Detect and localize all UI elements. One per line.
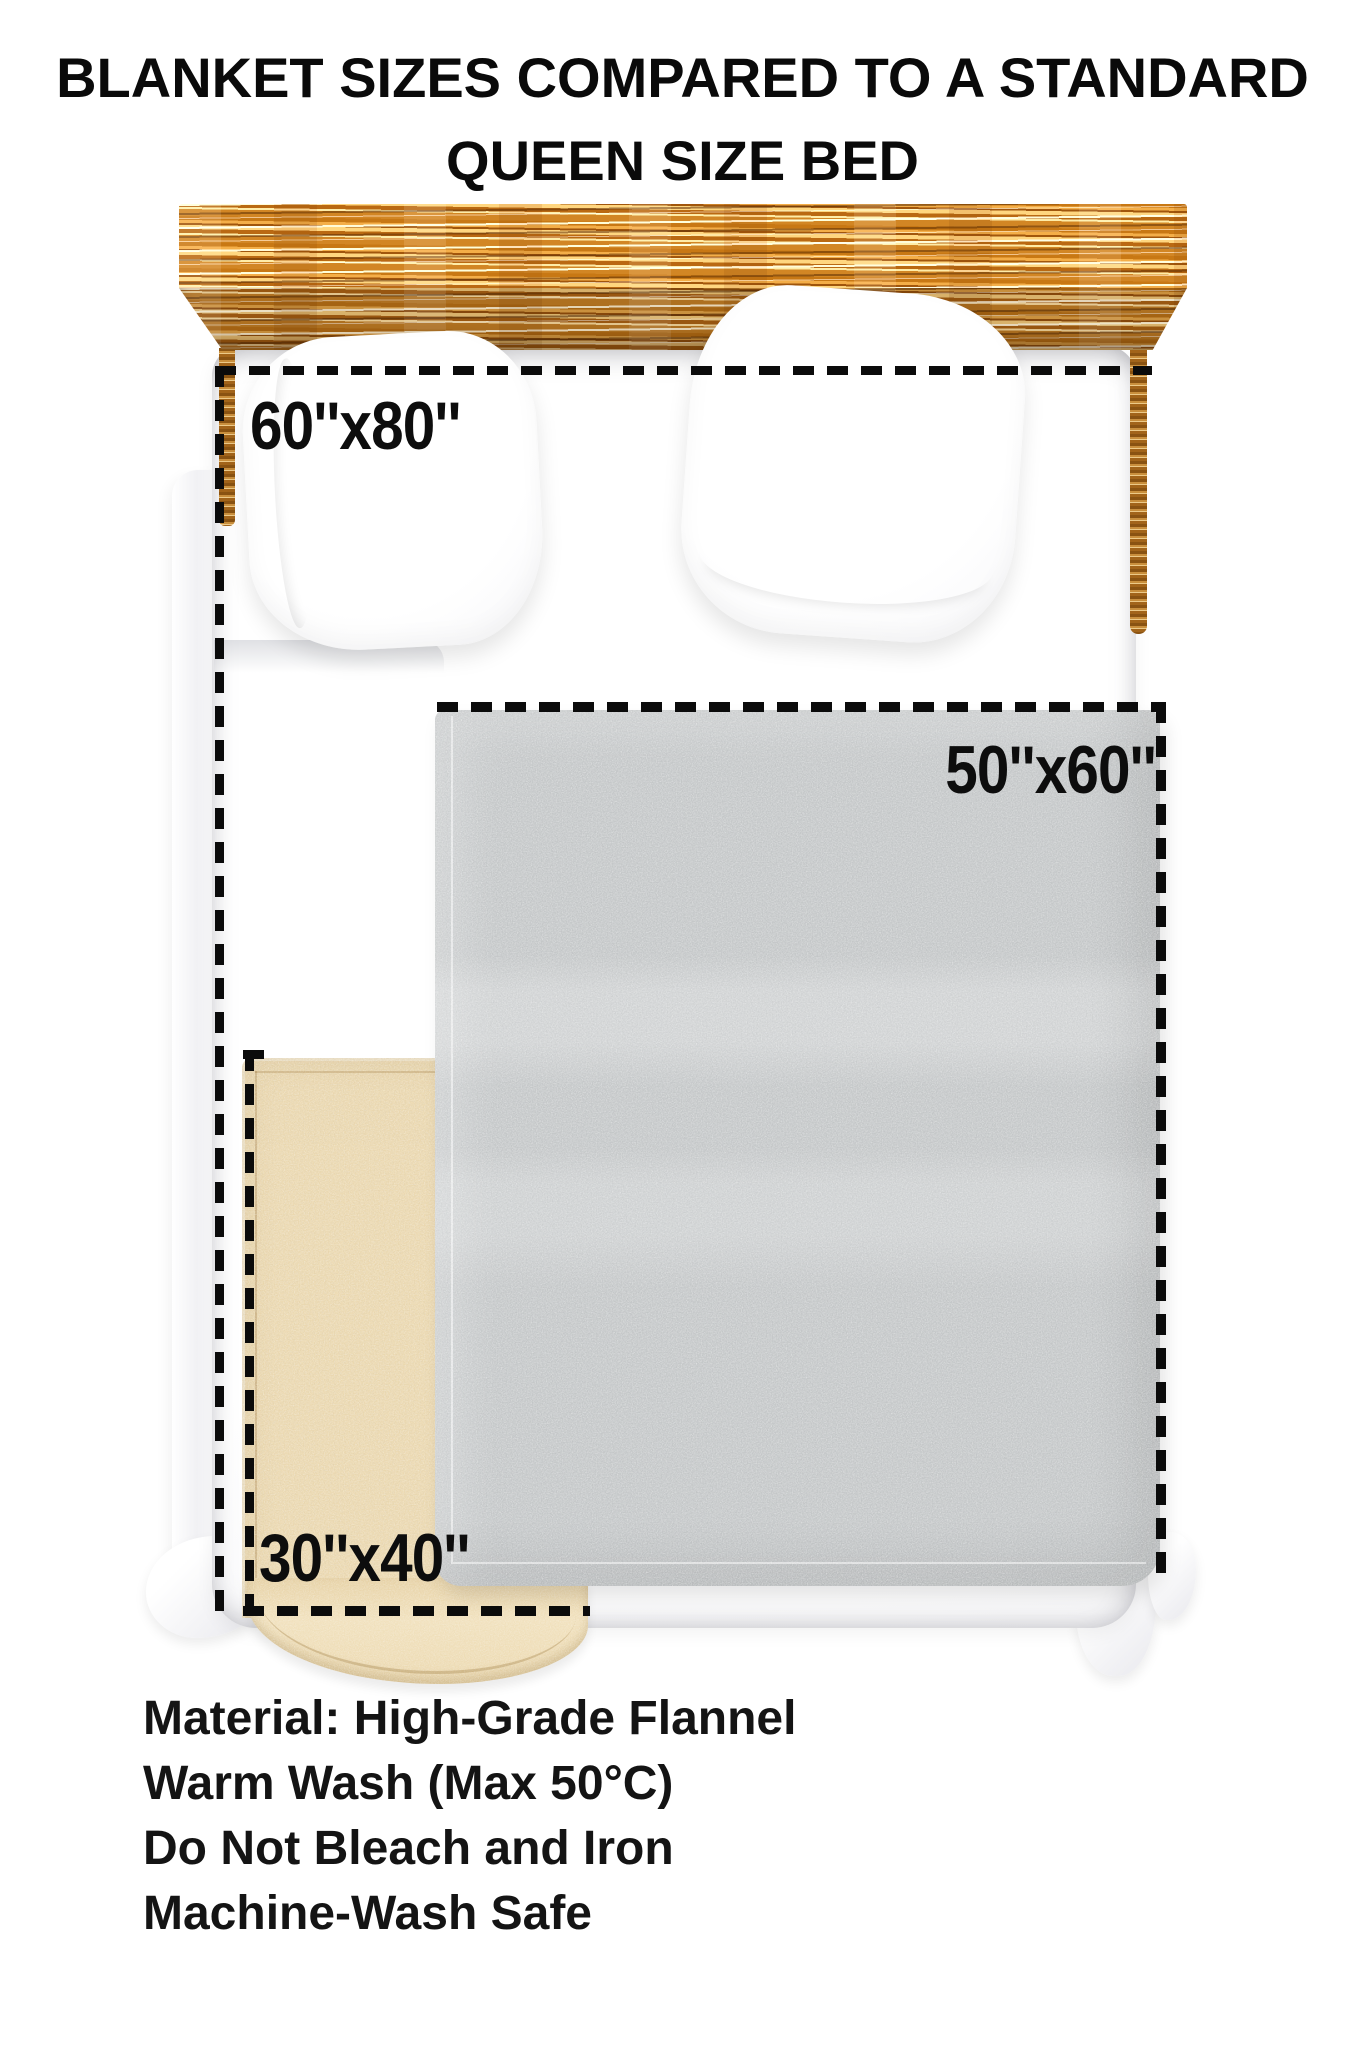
size-label-50x60: 50''x60'' [945,736,1156,804]
pillow-right [674,279,1031,649]
pillow-left [238,327,548,656]
blanket-50x60 [435,710,1160,1586]
page-title: BLANKET SIZES COMPARED TO A STANDARD QUE… [0,36,1365,202]
headboard [179,204,1187,288]
outline-50x60-top-edge [437,702,1166,712]
size-label-60x80: 60''x80'' [250,392,461,460]
care-line-material: Material: High-Grade Flannel [143,1686,796,1751]
care-instructions: Material: High-Grade Flannel Warm Wash (… [143,1686,796,1946]
bed-rail-right [1130,344,1147,634]
outline-60x80-top-edge [215,366,1152,375]
title-line-1: BLANKET SIZES COMPARED TO A STANDARD [0,36,1365,119]
flannel-texture [435,710,1160,1586]
care-line-bleach: Do Not Bleach and Iron [143,1816,796,1881]
outline-bottom-edge [243,1606,590,1616]
care-line-machine: Machine-Wash Safe [143,1881,796,1946]
outline-60x80-left-edge [215,366,224,1616]
infographic-canvas: BLANKET SIZES COMPARED TO A STANDARD QUE… [0,0,1365,2048]
outline-50x60-right-edge [1156,702,1166,1574]
outline-30x40-left-edge [245,1050,254,1606]
size-label-30x40: 30''x40'' [259,1524,470,1592]
title-line-2: QUEEN SIZE BED [0,119,1365,202]
care-line-wash: Warm Wash (Max 50°C) [143,1751,796,1816]
